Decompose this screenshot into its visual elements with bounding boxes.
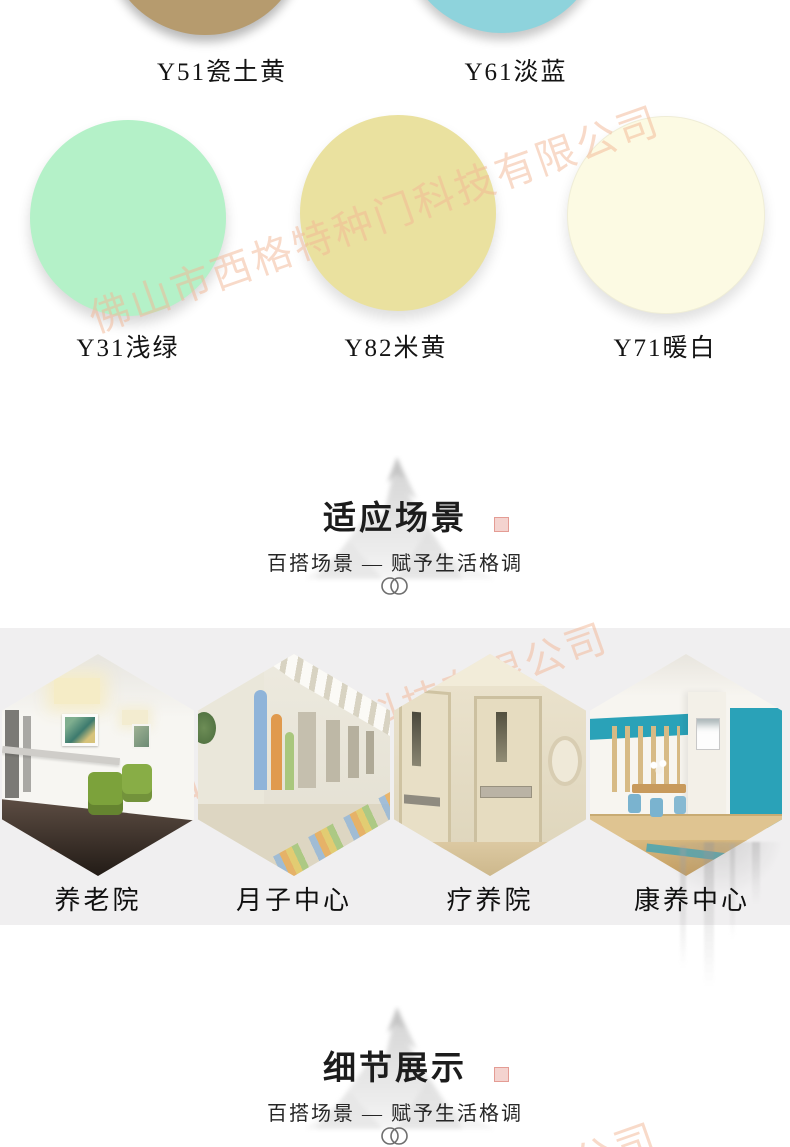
photo-wood-partition bbox=[612, 726, 680, 792]
photo-wall-art bbox=[132, 724, 151, 749]
photo-armchair bbox=[122, 764, 152, 802]
photo-column bbox=[688, 692, 726, 834]
section-header-details: 细节展示 百搭场景 — 赋予生活格调 bbox=[0, 1005, 790, 1147]
photo-door bbox=[348, 726, 359, 778]
color-swatch-y71 bbox=[567, 116, 765, 314]
photo-door bbox=[298, 712, 316, 788]
photo-push-plate bbox=[480, 786, 532, 798]
scene-label-nursing-home: 养老院 bbox=[2, 880, 194, 917]
photo-door bbox=[474, 696, 542, 850]
photo-armchair bbox=[88, 772, 123, 815]
photo-dining-table bbox=[632, 784, 686, 793]
photo-flowers bbox=[646, 758, 672, 776]
photo-signage-bar bbox=[271, 714, 282, 790]
photo-door-glass bbox=[496, 712, 507, 762]
swatch-label-y31: Y31浅绿 bbox=[8, 328, 248, 364]
section-subtitle: 百搭场景 — 赋予生活格调 bbox=[0, 547, 790, 576]
photo-wall-art bbox=[62, 714, 98, 746]
swatch-label-y51: Y51瓷土黄 bbox=[102, 52, 342, 88]
photo-ceiling-light bbox=[54, 678, 100, 704]
photo-chair bbox=[628, 794, 641, 813]
photo-door bbox=[399, 688, 451, 851]
section-title: 细节展示 bbox=[0, 1041, 790, 1089]
swatch-label-y71: Y71暖白 bbox=[545, 328, 785, 364]
photo-door-glass bbox=[412, 712, 421, 767]
section-subtitle: 百搭场景 — 赋予生活格调 bbox=[0, 1097, 790, 1126]
photo-teal-accent-wall bbox=[730, 708, 782, 828]
scene-label-postpartum-center: 月子中心 bbox=[198, 880, 390, 917]
photo-ceiling-light bbox=[122, 710, 148, 725]
seal-stamp-icon bbox=[494, 1067, 509, 1082]
photo-wall-art bbox=[696, 718, 720, 750]
double-rings-icon bbox=[0, 575, 790, 602]
color-swatch-y61 bbox=[402, 0, 602, 33]
color-swatch-y82 bbox=[300, 115, 496, 311]
swatch-label-y82: Y82米黄 bbox=[276, 328, 516, 364]
photo-chair bbox=[674, 796, 686, 814]
color-swatch-y31 bbox=[30, 120, 226, 316]
photo-door bbox=[326, 720, 340, 782]
photo-chair bbox=[650, 798, 663, 817]
color-swatch-y51 bbox=[105, 0, 305, 35]
product-detail-page: 佛山市西格特种门科技有限公司 佛山市西格特种门科技有限公司 佛山市西格特种门科技… bbox=[0, 0, 790, 1147]
section-header-scenes: 适应场景 百搭场景 — 赋予生活格调 bbox=[0, 455, 790, 605]
photo-door bbox=[366, 731, 374, 774]
swatch-label-y61: Y61淡蓝 bbox=[396, 52, 636, 88]
scene-label-wellness-center: 康养中心 bbox=[596, 880, 788, 917]
double-rings-icon bbox=[0, 1125, 790, 1147]
seal-stamp-icon bbox=[494, 517, 509, 532]
scene-label-sanatorium: 疗养院 bbox=[394, 880, 586, 917]
photo-porthole-window bbox=[548, 736, 582, 786]
section-title: 适应场景 bbox=[0, 491, 790, 539]
photo-signage-bar bbox=[285, 732, 294, 790]
photo-signage-bar bbox=[254, 690, 267, 790]
